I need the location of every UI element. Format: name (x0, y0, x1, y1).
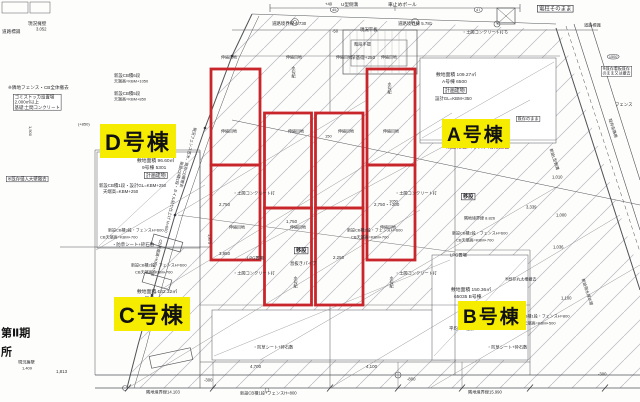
annotation-text: +40 (325, 2, 332, 7)
annotation-text: ゴミストッカ設置場 2.000㎡以上 基礎:土間コンクリート (13, 94, 62, 111)
annotation-text: 1050 (389, 199, 398, 204)
annotation-text: 伸縮目地 (336, 55, 352, 60)
annotation-text: 天端高=KBM+850 (114, 97, 146, 102)
annotation-text: 1,409 (22, 366, 32, 371)
annotation-text: 45 (330, 7, 338, 13)
annotation-text: 既存のまま (516, 116, 540, 122)
annotation-text: 電柱そのまま (537, 5, 573, 13)
annotation-text: 道路境界線 2.730 (272, 21, 306, 26)
annotation-text: 150 (325, 134, 332, 139)
annotation-text: ※隣地フェンス・CB全体撤去 (8, 85, 69, 90)
annotation-text: 現況平板 (360, 27, 378, 32)
building-label-c: C号棟 (114, 297, 190, 331)
annotation-text: 息抜きパイプ (290, 261, 316, 266)
annotation-text: ・土間コンクリート打 (233, 271, 275, 276)
annotation-text: 3.052 (36, 27, 47, 32)
annotation-text: 新設CB積2段・フェンスH=600 (131, 263, 187, 268)
annotation-text: 車止めポール (388, 2, 417, 8)
annotation-text: フェンス (615, 102, 633, 107)
annotation-text: 伸縮目地 (338, 129, 354, 134)
annotation-text: ・土間コンクリート打 (233, 191, 275, 196)
annotation-text: ※既存侵入大壁撤去 (6, 176, 48, 182)
annotation-text: 階段手摺 (354, 42, 371, 47)
annotation-text: 深基礎+250 (351, 55, 375, 60)
annotation-text: 伸縮目地 (288, 129, 304, 134)
annotation-text: CB天端高=KBM+700 (456, 238, 494, 243)
annotation-text: 水勾配 (291, 66, 296, 78)
annotation-text: 移設 (461, 193, 475, 200)
annotation-text: 新設CB積2段・フェンスH=600 (452, 231, 508, 236)
annotation-text: LPG置場 (450, 253, 467, 258)
annotation-text: ※既存看板既存 のまま又は撤去 (601, 66, 632, 76)
annotation-text: 伸縮目地 (221, 129, 237, 134)
lot-b-area-text: 敷地面積 150.36㎡ (451, 287, 491, 293)
lot-d-unit-text: 9号棟 5301 (142, 165, 166, 171)
annotation-text: 道路境界線 5.781 (398, 21, 432, 26)
annotation-text: 1,010 (552, 175, 563, 180)
annotation-text: 1,036 (553, 245, 564, 250)
annotation-text: -800 (407, 377, 415, 382)
annotation-text: 道路標識 (584, 23, 601, 28)
annotation-text: 伸縮目地 (229, 225, 245, 230)
annotation-text: 新設CB積1段+フェンスH=800 (240, 391, 297, 396)
annotation-text: U型側溝 (341, 2, 358, 7)
annotation-text: 新設L型側溝 (549, 148, 560, 171)
lot-a-unit-text: A号棟 6500 (442, 79, 467, 85)
annotation-text: 隣地境界線15.990 (468, 390, 502, 395)
annotation-text: 伸縮目地 (290, 225, 306, 230)
annotation-text: ・防草シート+砕石敷 (253, 345, 293, 350)
lot-d-note-2: 天端高=KBM+250 (103, 189, 138, 194)
annotation-text: ・土間コンクリート打 (395, 191, 437, 196)
annotation-text: 現況擁壁 (28, 21, 46, 26)
annotation-text: 第Ⅱ期 (1, 327, 30, 340)
building-label-a: A号棟 (442, 119, 510, 148)
lot-a-plan-box: 計画建物 (443, 87, 467, 94)
annotation-text: 伸縮目地 (286, 55, 302, 60)
annotation-text: 47 (474, 7, 482, 13)
annotation-text: (+850) (78, 122, 90, 127)
annotation-text: -300 (598, 372, 606, 377)
lot-d-note-1: 新設CB積1段・設計GL=KBM+250 (99, 183, 166, 188)
lot-c-area-text: 敷地面積 142.32㎡ (137, 289, 177, 295)
annotation-text: 隣地境界線 8.826 (464, 216, 495, 221)
annotation-text: CB天端高=KBM+700 (100, 235, 138, 240)
annotation-text: LPG置場 (247, 256, 264, 261)
annotation-text: ・土間コンクリート打ち (462, 30, 508, 35)
annotation-text: 1,813 (56, 369, 67, 374)
annotation-text: 2,250 (333, 255, 344, 260)
annotation-text: 伸縮目地 (221, 55, 237, 60)
building-label-b: B号棟 (458, 301, 526, 330)
site-plan-canvas: 現況擁壁3.052道路標識+40U型側溝車止めポール道路境界線 2.730道路境… (0, 0, 640, 402)
annotation-text: 1,100 (561, 296, 572, 301)
annotation-text: 現況フェンス笠木、既存CB塀撤去 (179, 127, 197, 188)
annotation-text: 現況擁壁 (18, 360, 35, 365)
lot-b-unit-text: 65035 B号棟 (454, 294, 481, 300)
annotation-layer: 現況擁壁3.052道路標識+40U型側溝車止めポール道路境界線 2.730道路境… (0, 0, 640, 402)
annotation-text: 新設CB積2段・フェンスH=600 (347, 228, 403, 233)
annotation-text: 道路標識 (2, 29, 20, 34)
lot-d-area-text: 敷地面積 96.60㎡ (137, 158, 174, 164)
annotation-text: CB天端高=KBM+700 (351, 235, 389, 240)
annotation-text: 天端高=KBM+1050 (114, 79, 148, 84)
annotation-text: 1,875 (207, 234, 212, 244)
annotation-text: ※既存丸太柵撤去 (505, 277, 536, 282)
annotation-text: 1,500 (28, 126, 33, 136)
annotation-text: 伸縮目地 (381, 55, 397, 60)
annotation-text: 所 (1, 346, 12, 359)
annotation-text: ・土間コンクリート打 (395, 271, 437, 276)
lot-d-plan-box: 計画建物 (144, 172, 168, 179)
annotation-text: 既存街路樹 (608, 118, 619, 138)
annotation-text: 2,750 (219, 202, 230, 207)
annotation-text: 新設CB積6段 (114, 73, 140, 78)
annotation-text: 新設CB積5段 (114, 91, 140, 96)
annotation-text: 水勾配 (389, 276, 394, 288)
annotation-text: 3,339 (526, 205, 537, 210)
annotation-text: 新設CB積3段・フェンスH=600 (108, 228, 164, 233)
annotation-text: 新設雨水排水管 (581, 278, 594, 306)
annotation-text: -50 (332, 29, 338, 34)
annotation-text: 4,700 (250, 364, 261, 369)
annotation-text: 1500 (607, 54, 619, 59)
annotation-text: 水勾配 (293, 276, 298, 288)
lot-a-area-text: 敷地面積 109.27㎡ (436, 72, 476, 78)
annotation-text: ・防草シート+砕石敷 (487, 345, 527, 350)
annotation-text: 1,750 (286, 219, 297, 224)
annotation-text: 伸縮目地 (383, 129, 399, 134)
lot-a-note-1: 設計GL=KBM+350 (435, 96, 472, 101)
annotation-text: 1,000 (556, 213, 567, 218)
annotation-text: 移設 (294, 247, 308, 254)
annotation-text: -300 (204, 378, 212, 383)
annotation-text: 水勾配 (387, 82, 392, 94)
annotation-text: 隣地境界線14.103 (146, 390, 180, 395)
annotation-text: 4,100 (366, 364, 377, 369)
building-label-d: D号棟 (100, 124, 176, 158)
annotation-text: ・防草シート+砕石敷 (112, 242, 154, 247)
annotation-text: 3,950 (219, 251, 230, 256)
